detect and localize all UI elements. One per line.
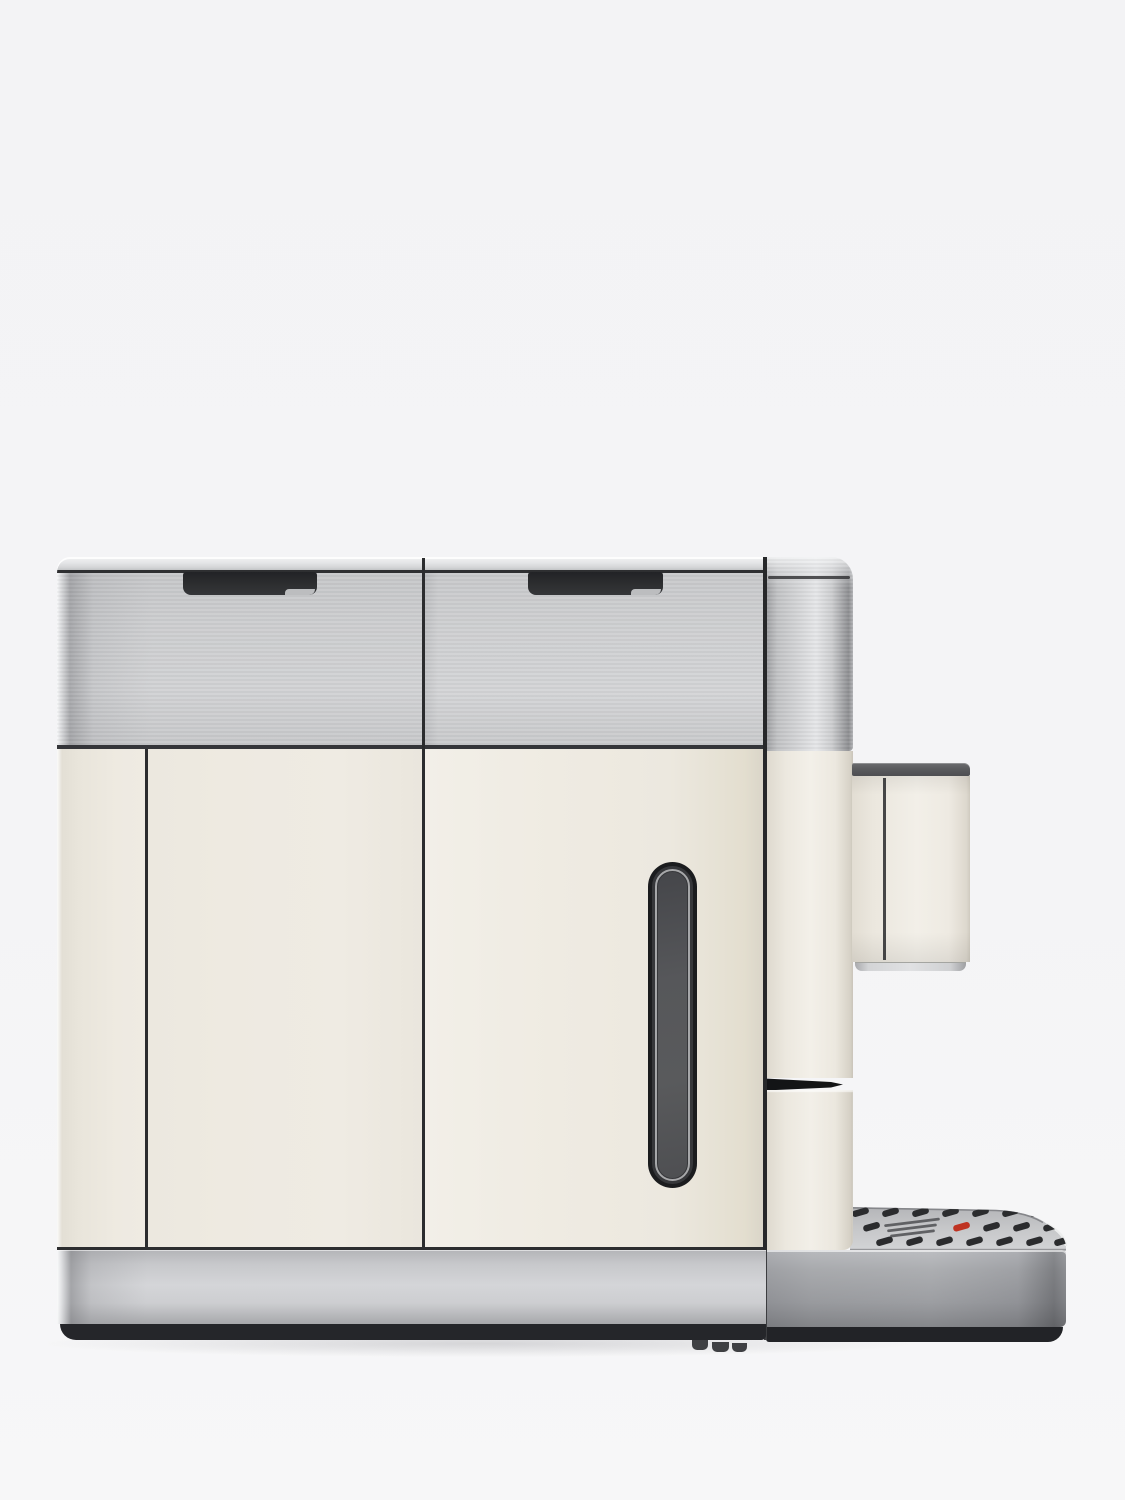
drip-tray-plinth xyxy=(766,1327,1063,1342)
water-level-window-glass xyxy=(658,872,687,1178)
coffee-spout-seam xyxy=(883,778,886,960)
center-panel-seam xyxy=(422,558,425,1247)
bean-hopper-lid-handle-slot xyxy=(183,572,317,595)
rear-foot-detail xyxy=(712,1342,729,1352)
drip-tray-front xyxy=(766,1250,1066,1327)
coffee-spout-body xyxy=(852,776,970,962)
side-door-panel xyxy=(146,748,424,1249)
rear-foot-detail xyxy=(692,1340,708,1350)
right-pillar-lower xyxy=(765,1090,853,1250)
lid-top-lip xyxy=(57,557,765,573)
body-base-seam xyxy=(57,1247,765,1250)
side-panel-left-strip xyxy=(57,748,146,1249)
rear-foot-detail xyxy=(732,1343,747,1352)
right-pillar-lip-seam xyxy=(768,576,850,579)
right-pillar-steel xyxy=(765,557,853,751)
left-panel-seam xyxy=(145,749,148,1247)
coffee-spout-trim xyxy=(855,962,966,971)
base-plinth xyxy=(60,1324,766,1340)
right-pillar-upper xyxy=(765,751,853,1078)
product-photo-stage xyxy=(0,0,1125,1500)
water-tank-lid-handle-slot xyxy=(528,572,663,595)
top-band-left-lid-front xyxy=(57,573,422,748)
water-tank-panel xyxy=(424,748,765,1249)
spout-top-cap xyxy=(852,763,970,776)
top-band-right-lid-front xyxy=(424,573,765,748)
base-steel-band xyxy=(57,1249,766,1324)
top-band-bottom-seam xyxy=(57,745,765,749)
right-pillar-seam xyxy=(763,557,767,1250)
